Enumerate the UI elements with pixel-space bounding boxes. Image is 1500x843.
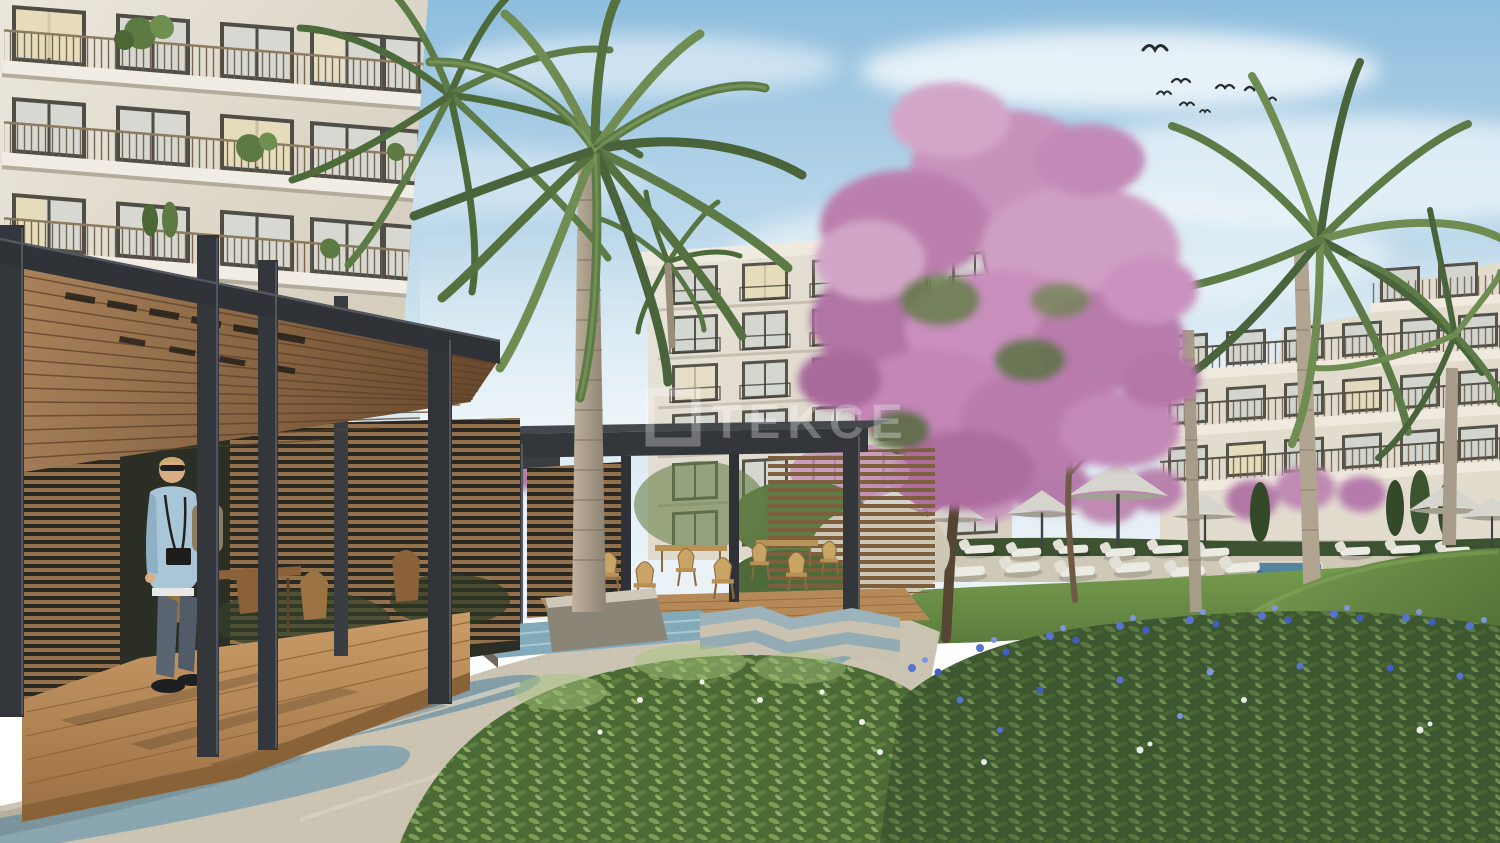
- lit-window: [745, 264, 785, 298]
- camera-bag: [166, 548, 191, 565]
- sunglasses: [160, 465, 185, 471]
- watermark-text: TEKCE: [712, 396, 910, 449]
- residential-complex-rendering: TEKCE: [0, 0, 1500, 843]
- rendering-image: TEKCE: [0, 0, 1500, 843]
